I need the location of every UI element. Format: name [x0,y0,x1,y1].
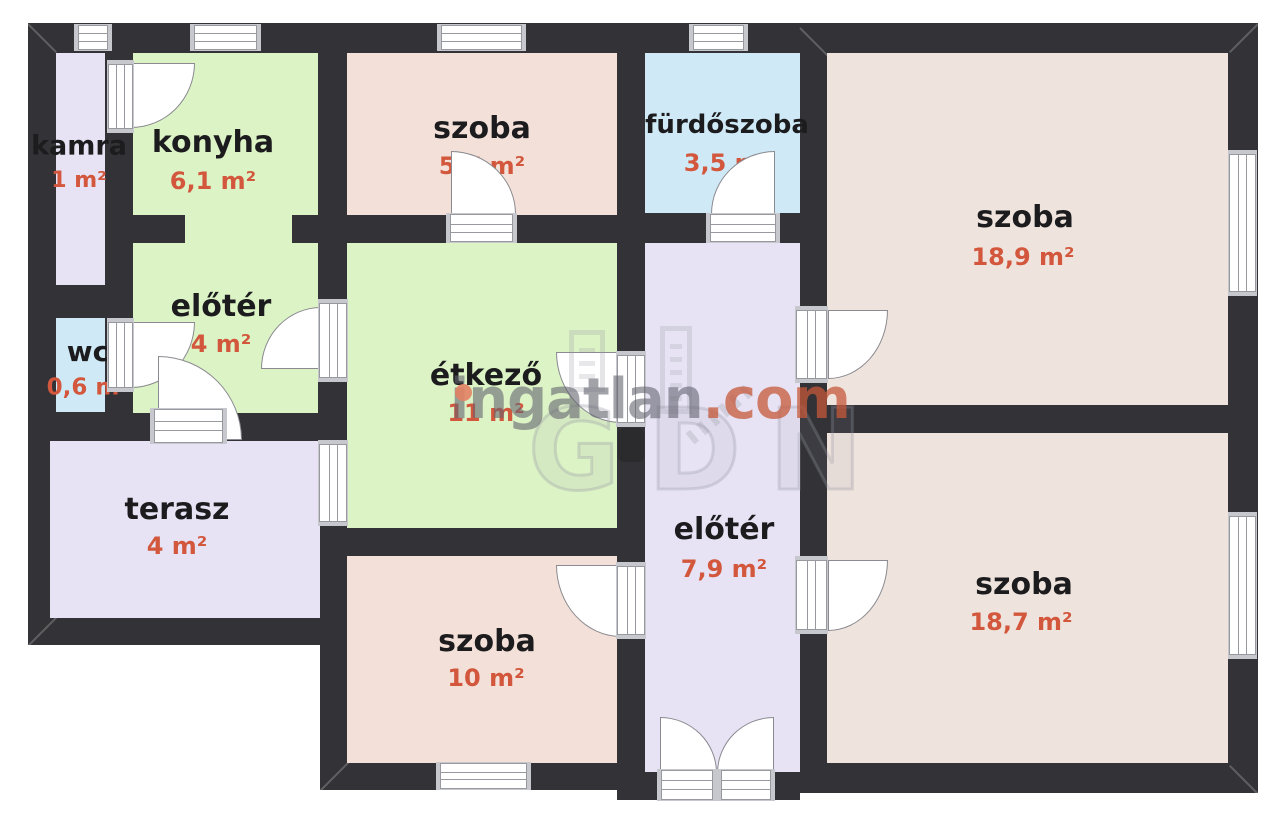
door-frame-pane [154,409,223,443]
door-frame-pane [617,566,645,635]
door-frame [107,318,134,392]
door-frame [657,769,717,801]
window [436,762,531,790]
window-pane [440,763,527,789]
door-frame-pane [796,560,827,630]
room-area-eloter-felso: 4 m² [191,332,252,356]
window-pane [1229,154,1256,292]
window-pane [319,444,347,522]
window-pane [693,25,744,50]
room-label-szoba-187: szoba [975,570,1073,600]
room-area-terasz: 4 m² [147,534,208,558]
room-terasz [50,441,320,618]
floorplan: kamra1 m²konyha6,1 m²előtér4 m²wc0,6 m²s… [0,0,1280,826]
room-eloter-also [645,243,800,772]
watermark-com: .com [703,367,850,432]
room-label-konyha: konyha [152,128,274,158]
room-konyha [185,215,292,244]
room-label-szoba-10: szoba [438,627,536,657]
watermark-brand: ingatlan.com [450,372,850,428]
door-frame-pane [661,770,713,800]
window [1228,512,1257,659]
room-label-wc: wc [67,338,109,366]
room-label-eloter-felso: előtér [171,292,272,322]
door-frame [706,213,780,243]
window-pane [78,25,108,50]
door-frame [795,556,828,634]
window [190,24,261,51]
door-frame-pane [710,214,776,242]
window-pane [194,25,257,50]
room-label-terasz: terasz [124,495,229,525]
window-pane [1229,516,1256,655]
room-label-szoba-57: szoba [433,114,531,144]
room-area-konyha: 6,1 m² [170,169,256,193]
room-area-szoba-187: 18,7 m² [969,610,1072,634]
door-frame-pane [721,770,771,800]
room-label-kamra: kamra [31,133,127,160]
door-frame-pane [450,214,513,242]
window [74,24,112,51]
window [318,440,348,526]
door-frame [717,769,775,801]
watermark-ingatlan: ingatlan [450,367,703,432]
room-area-kamra: 1 m² [51,170,107,192]
door-frame [318,299,348,382]
window [437,24,526,51]
door-frame-pane [108,322,133,388]
room-label-furdoszoba: fürdőszoba [645,112,809,138]
door-frame [446,213,517,243]
door-frame [150,408,227,444]
room-area-szoba-10: 10 m² [447,666,524,690]
room-label-eloter-also: előtér [674,515,775,545]
window [689,24,748,51]
door-frame [616,562,646,639]
room-label-szoba-189: szoba [976,203,1074,233]
room-area-eloter-also: 7,9 m² [681,557,767,581]
radiator-icon [618,428,644,462]
door-frame-pane [108,64,133,129]
window-pane [441,25,522,50]
window [1228,150,1257,296]
door-frame [107,60,134,133]
watermark-i-dot-icon [455,384,472,401]
room-area-szoba-189: 18,9 m² [971,245,1074,269]
door-frame-pane [319,303,347,378]
